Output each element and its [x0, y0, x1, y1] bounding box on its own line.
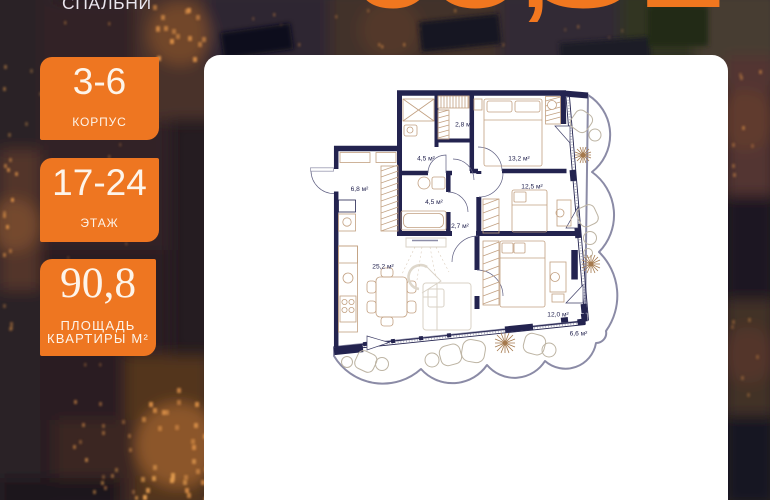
svg-text:4,5 м²: 4,5 м² [417, 156, 436, 163]
svg-text:12,0 м²: 12,0 м² [547, 312, 569, 319]
svg-text:6,8 м²: 6,8 м² [351, 186, 370, 193]
svg-text:25,2 м²: 25,2 м² [372, 263, 394, 270]
svg-text:2,8 м²: 2,8 м² [455, 122, 474, 129]
svg-text:4,5 м²: 4,5 м² [425, 199, 444, 206]
svg-text:13,2 м²: 13,2 м² [508, 156, 530, 163]
svg-text:12,5 м²: 12,5 м² [521, 184, 543, 191]
svg-text:6,6 м²: 6,6 м² [570, 330, 589, 337]
svg-text:2,7 м²: 2,7 м² [451, 223, 470, 230]
